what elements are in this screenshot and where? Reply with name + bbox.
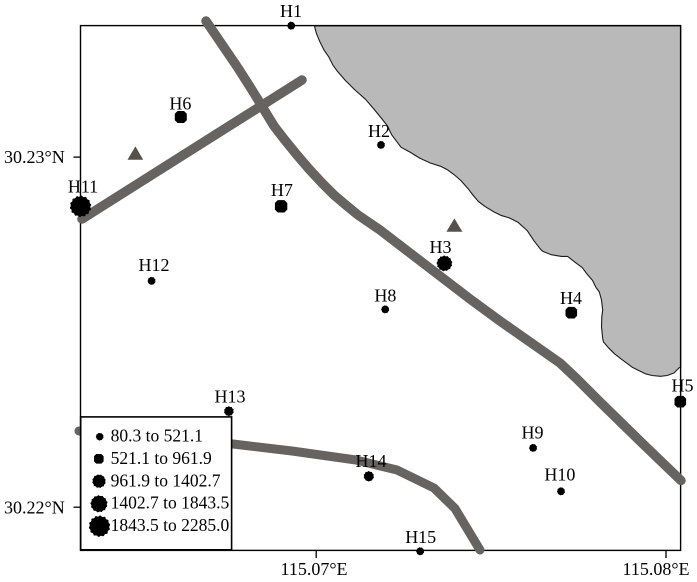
svg-text:H4: H4: [560, 288, 582, 308]
svg-text:80.3 to 521.1: 80.3 to 521.1: [111, 426, 203, 446]
svg-text:1843.5 to 2285.0: 1843.5 to 2285.0: [111, 515, 230, 535]
svg-text:30.23°N: 30.23°N: [4, 147, 65, 167]
svg-text:H13: H13: [215, 387, 246, 407]
svg-text:H7: H7: [271, 180, 293, 200]
svg-text:H8: H8: [374, 285, 396, 305]
svg-text:H10: H10: [544, 465, 575, 485]
svg-text:961.9 to 1402.7: 961.9 to 1402.7: [111, 470, 221, 490]
svg-text:H6: H6: [169, 93, 191, 113]
svg-text:H5: H5: [672, 376, 694, 396]
svg-text:H15: H15: [405, 527, 436, 547]
svg-text:30.22°N: 30.22°N: [4, 497, 65, 517]
svg-text:H2: H2: [368, 121, 390, 141]
svg-text:H3: H3: [430, 237, 452, 257]
svg-text:521.1 to 961.9: 521.1 to 961.9: [111, 448, 212, 468]
svg-text:H9: H9: [522, 423, 544, 443]
svg-text:115.07°E: 115.07°E: [280, 559, 347, 579]
svg-text:115.08°E: 115.08°E: [622, 559, 689, 579]
svg-text:1402.7 to 1843.5: 1402.7 to 1843.5: [111, 493, 230, 513]
svg-text:H12: H12: [139, 255, 170, 275]
svg-text:H14: H14: [356, 451, 387, 471]
svg-text:H1: H1: [280, 1, 302, 21]
svg-text:H11: H11: [68, 176, 98, 196]
